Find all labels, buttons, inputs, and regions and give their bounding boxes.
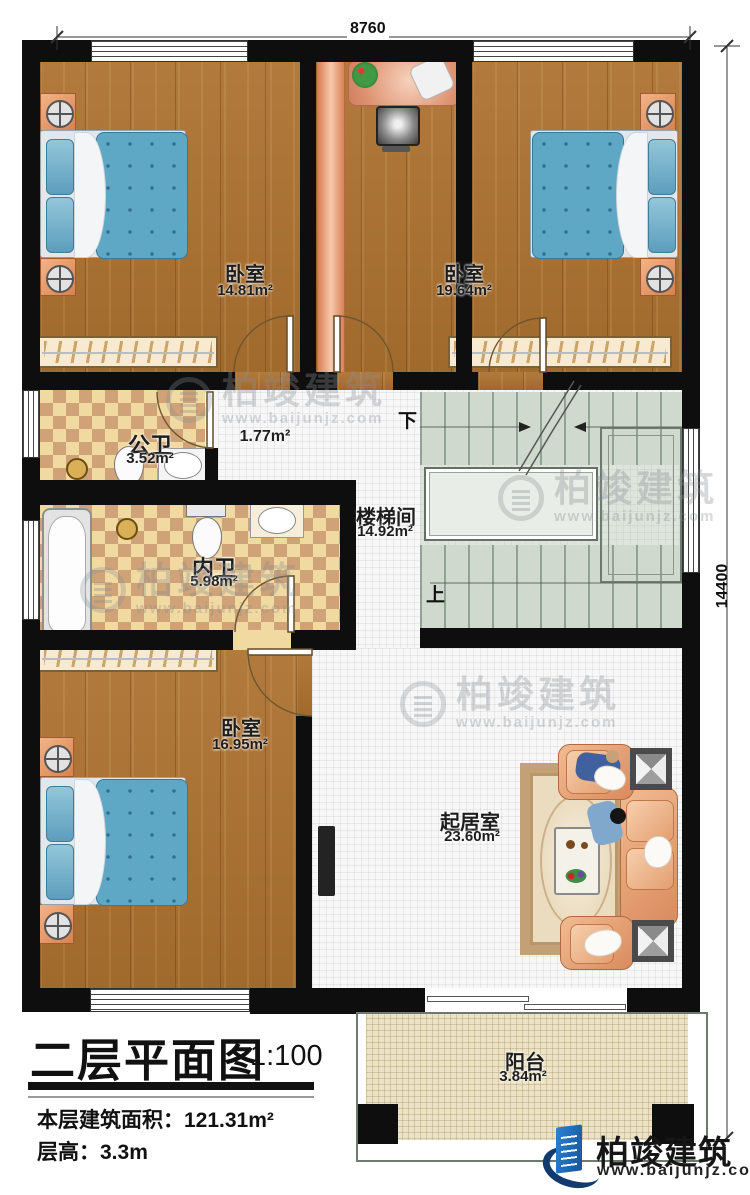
door-opening bbox=[233, 630, 291, 650]
wall bbox=[682, 40, 700, 428]
floor-area-label: 本层建筑面积： bbox=[37, 1109, 184, 1132]
bed-quilt bbox=[96, 779, 188, 906]
wall bbox=[22, 480, 356, 505]
wall bbox=[300, 62, 316, 372]
door-opening bbox=[205, 390, 218, 448]
stair-down-label: 下 bbox=[398, 406, 417, 433]
closet-strip bbox=[318, 62, 345, 372]
wall bbox=[296, 716, 312, 988]
nightstand bbox=[40, 258, 76, 296]
pillow bbox=[46, 139, 74, 195]
room-area-bedroom-sw: 16.95m² bbox=[212, 736, 268, 753]
window bbox=[22, 520, 40, 620]
room-area-public-bath: 3.52m² bbox=[126, 450, 174, 467]
sink-basin bbox=[258, 507, 296, 534]
wall bbox=[290, 372, 337, 390]
door-opening bbox=[478, 372, 543, 390]
floor-height-row: 层高：3.3m bbox=[37, 1136, 148, 1166]
brand-logo-icon bbox=[546, 1126, 592, 1180]
stair-landing bbox=[424, 467, 598, 541]
wall bbox=[456, 62, 472, 372]
nightstand bbox=[640, 258, 676, 296]
nightstand bbox=[38, 737, 74, 777]
floor-area-value: 121.31m² bbox=[184, 1109, 274, 1132]
room-area-ensuite-bath: 5.98m² bbox=[190, 573, 238, 590]
toilet-tank bbox=[186, 504, 226, 517]
pillow bbox=[648, 197, 676, 253]
wall bbox=[682, 573, 700, 1010]
title-underline-thin bbox=[28, 1096, 314, 1098]
room-area-bedroom-ne: 19.64m² bbox=[436, 282, 492, 299]
wall bbox=[22, 988, 90, 1012]
wall bbox=[420, 628, 682, 648]
pillow bbox=[46, 197, 74, 253]
floorplan-page: { "title_block": { "title": "二层平面图", "sc… bbox=[0, 0, 750, 1192]
ceiling-lamp bbox=[116, 518, 138, 540]
pillow bbox=[46, 844, 74, 900]
wall bbox=[250, 988, 425, 1014]
sliding-door-panel bbox=[427, 996, 529, 1002]
nightstand bbox=[38, 904, 74, 944]
plan-title: 二层平面图 bbox=[30, 1024, 265, 1089]
wall bbox=[248, 40, 473, 62]
wall bbox=[22, 40, 40, 390]
floor-area-row: 本层建筑面积：121.31m² bbox=[37, 1104, 274, 1134]
person-head bbox=[610, 808, 626, 824]
window bbox=[22, 390, 40, 458]
room-area-living: 23.60m² bbox=[444, 828, 500, 845]
sofa-cushion bbox=[626, 800, 674, 842]
window bbox=[90, 988, 250, 1012]
bed-sheet bbox=[616, 132, 648, 258]
stair-up-label: 上 bbox=[426, 580, 445, 607]
tv bbox=[318, 826, 335, 896]
floor-height-label: 层高： bbox=[37, 1141, 100, 1164]
throw-pillow bbox=[644, 836, 672, 868]
room-area-balcony: 3.84m² bbox=[499, 1068, 547, 1085]
wall bbox=[543, 372, 700, 390]
person-head bbox=[606, 750, 619, 763]
nightstand bbox=[640, 93, 676, 131]
bathtub-inner bbox=[48, 516, 86, 634]
stair-handrail-inner bbox=[608, 435, 674, 575]
door-opening bbox=[296, 650, 312, 716]
room-area-bedroom-nw: 14.81m² bbox=[217, 282, 273, 299]
wall bbox=[627, 988, 700, 1014]
window bbox=[473, 40, 634, 62]
wall bbox=[22, 620, 40, 1010]
monitor-stand bbox=[382, 146, 410, 152]
door-opening bbox=[337, 372, 393, 390]
dimension-top: 8760 bbox=[347, 20, 389, 38]
pillow bbox=[46, 786, 74, 842]
wall bbox=[22, 372, 235, 390]
sliding-door-panel bbox=[524, 1004, 626, 1010]
bed-quilt bbox=[96, 132, 188, 259]
title-underline-bar bbox=[28, 1082, 314, 1090]
wall bbox=[291, 630, 356, 650]
table-decor-flowers bbox=[564, 868, 588, 884]
side-table bbox=[632, 920, 674, 962]
window bbox=[91, 40, 248, 62]
wardrobe bbox=[38, 336, 218, 368]
logo-building bbox=[556, 1124, 582, 1173]
wall bbox=[340, 505, 356, 630]
table-decor-dots bbox=[566, 840, 575, 849]
bed-quilt bbox=[532, 132, 624, 259]
plant bbox=[352, 62, 378, 88]
room-area-hall: 1.77m² bbox=[240, 428, 291, 446]
nightstand bbox=[40, 93, 76, 131]
wall bbox=[22, 630, 233, 650]
wall bbox=[393, 372, 478, 390]
dimension-right: 14400 bbox=[714, 548, 732, 624]
window bbox=[682, 428, 700, 573]
floor-height-value: 3.3m bbox=[100, 1141, 148, 1164]
computer-monitor bbox=[376, 106, 420, 146]
wardrobe bbox=[448, 336, 672, 368]
brand-website: www.baijunjz.com bbox=[597, 1162, 750, 1180]
room-area-stairwell: 14.92m² bbox=[357, 523, 413, 540]
plan-scale: 1:100 bbox=[250, 1040, 323, 1073]
ceiling-lamp bbox=[66, 458, 88, 480]
side-table bbox=[630, 748, 672, 790]
pillow bbox=[648, 139, 676, 195]
door-opening bbox=[235, 372, 290, 390]
